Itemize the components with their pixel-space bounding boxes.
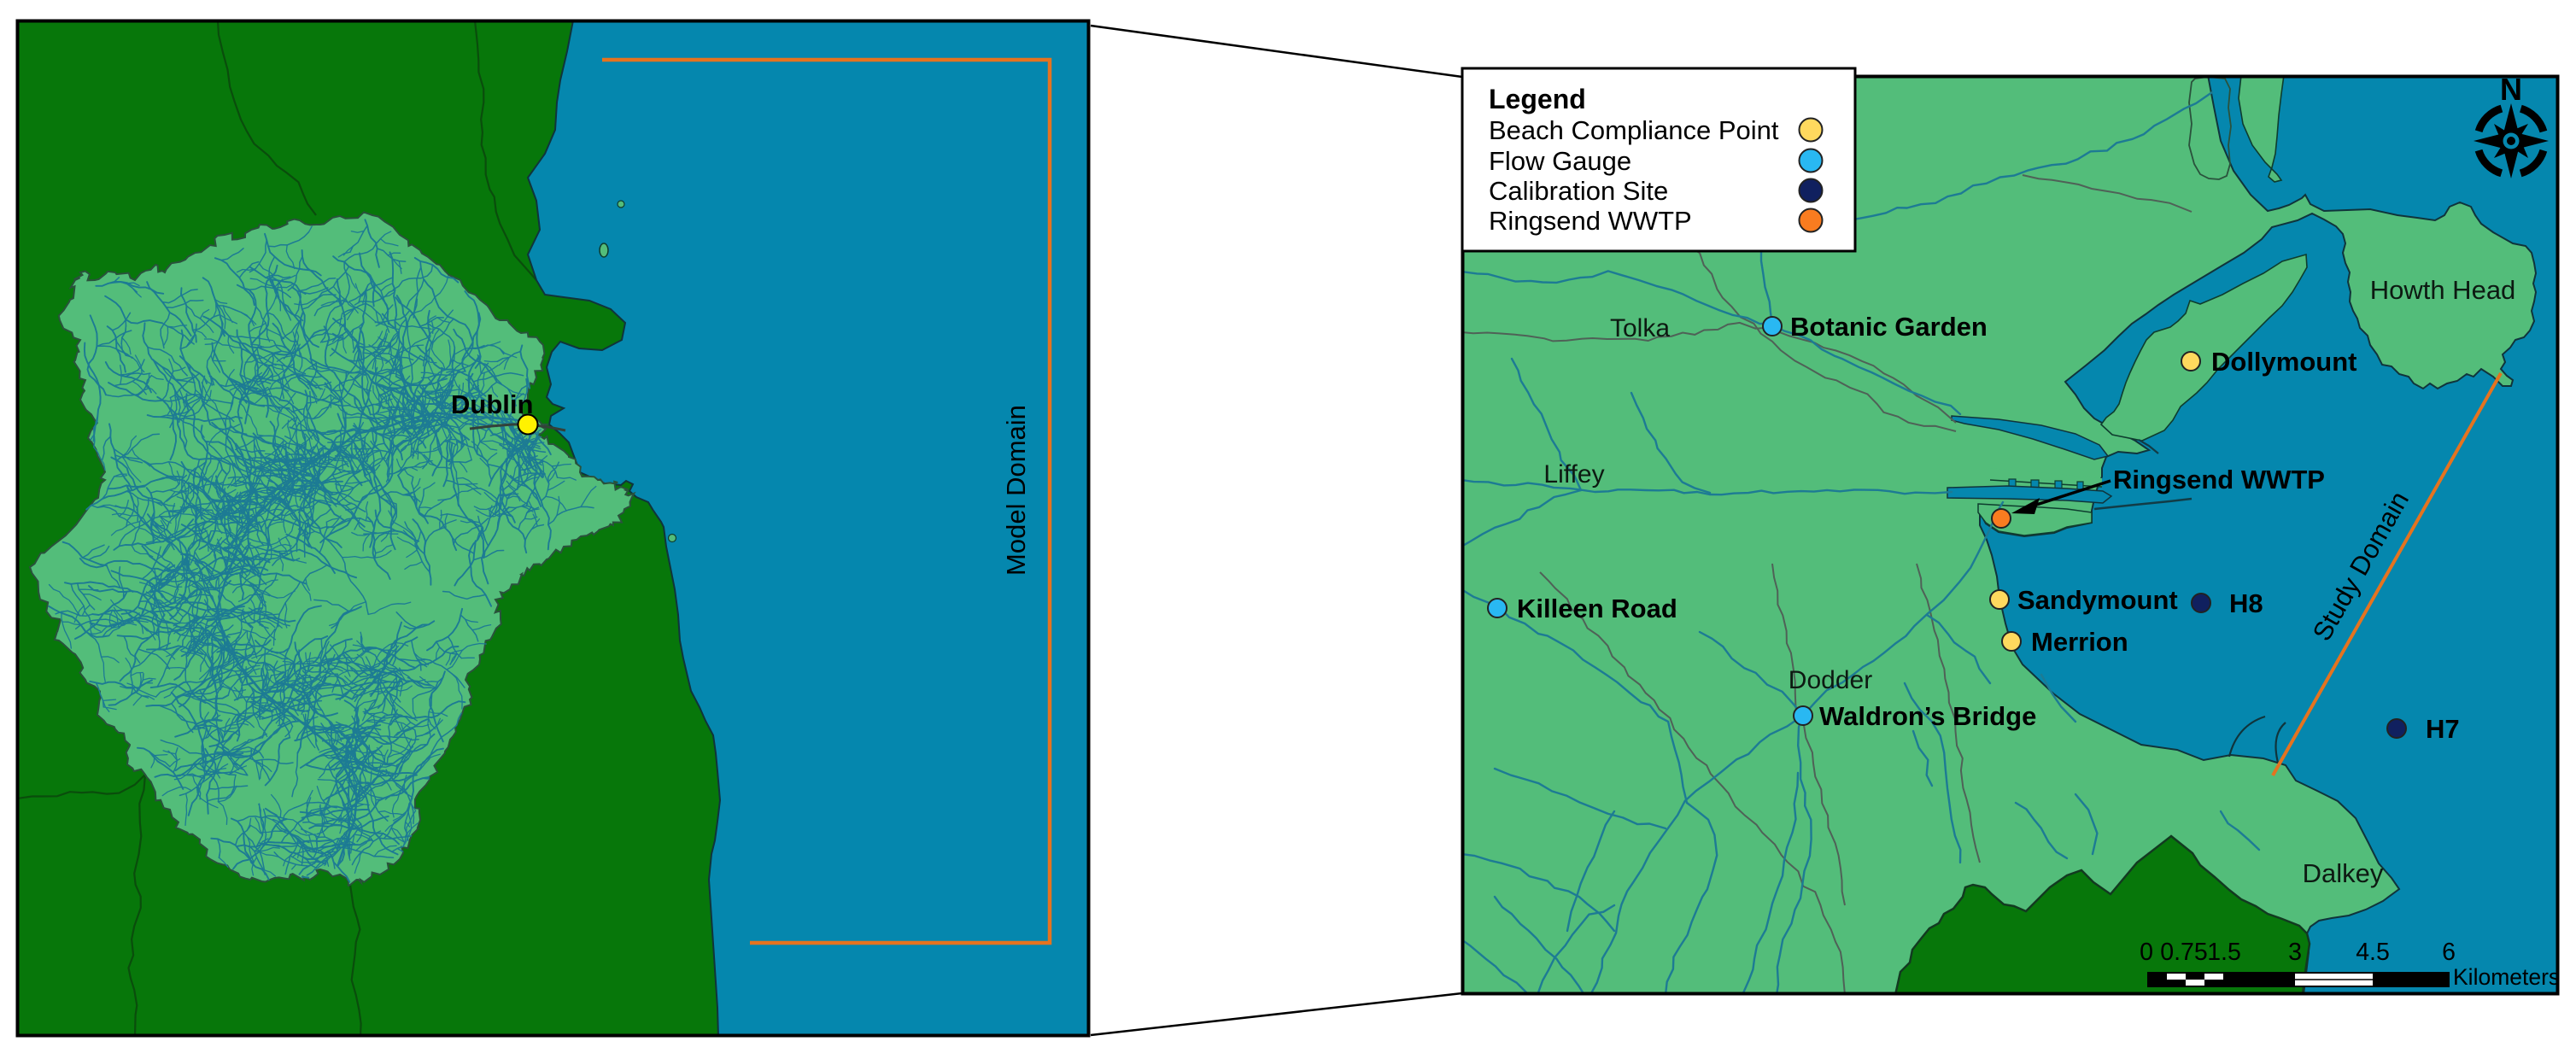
svg-text:Waldron’s Bridge: Waldron’s Bridge xyxy=(1819,701,2036,731)
svg-text:Dalkey: Dalkey xyxy=(2303,858,2384,888)
svg-text:Flow Gauge: Flow Gauge xyxy=(1489,146,1631,176)
svg-text:4.5: 4.5 xyxy=(2356,939,2390,966)
svg-text:0: 0 xyxy=(2140,939,2153,966)
svg-text:H7: H7 xyxy=(2426,714,2460,744)
svg-text:Killeen Road: Killeen Road xyxy=(1517,594,1677,623)
svg-text:Calibration Site: Calibration Site xyxy=(1489,176,1668,206)
svg-text:6: 6 xyxy=(2442,939,2456,966)
svg-text:Ringsend WWTP: Ringsend WWTP xyxy=(1489,206,1692,236)
svg-text:Tolka: Tolka xyxy=(1610,314,1670,342)
svg-text:Beach Compliance Point: Beach Compliance Point xyxy=(1489,115,1779,145)
svg-text:Liffey: Liffey xyxy=(1543,460,1604,489)
svg-text:Model Domain: Model Domain xyxy=(1001,405,1031,576)
svg-text:H8: H8 xyxy=(2229,588,2263,618)
svg-text:Kilometers: Kilometers xyxy=(2453,964,2560,990)
svg-text:Dollymount: Dollymount xyxy=(2211,347,2357,377)
svg-text:Merrion: Merrion xyxy=(2031,627,2128,657)
svg-text:Dublin: Dublin xyxy=(451,389,533,419)
svg-text:Dodder: Dodder xyxy=(1789,666,1872,694)
svg-text:Legend: Legend xyxy=(1489,84,1586,114)
svg-text:Botanic Garden: Botanic Garden xyxy=(1790,312,1988,342)
svg-text:Sandymount: Sandymount xyxy=(2017,585,2178,615)
svg-text:Ringsend WWTP: Ringsend WWTP xyxy=(2113,465,2325,494)
svg-text:3: 3 xyxy=(2288,939,2302,966)
svg-text:1.5: 1.5 xyxy=(2207,939,2241,966)
svg-text:Howth Head: Howth Head xyxy=(2370,275,2516,305)
svg-text:0.75: 0.75 xyxy=(2160,939,2207,966)
